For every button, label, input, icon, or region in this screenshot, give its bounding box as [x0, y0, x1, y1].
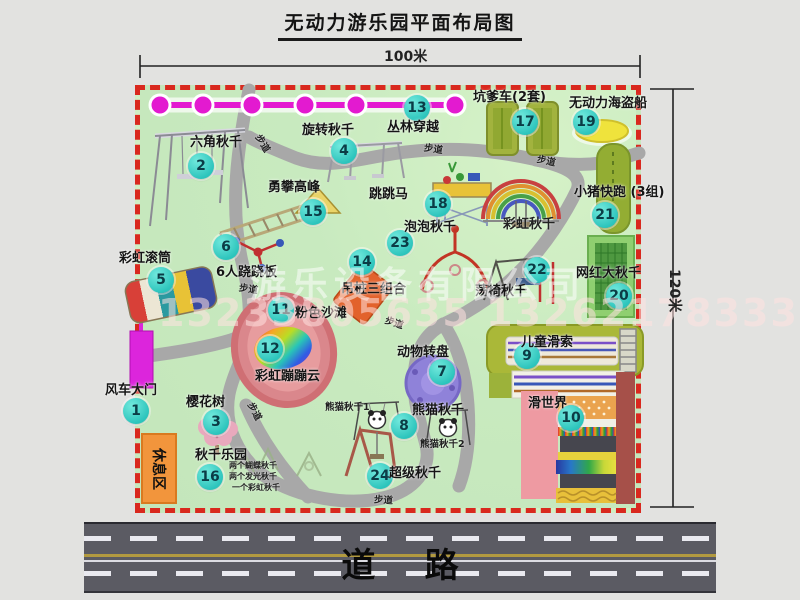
jungle-crossing-zipline — [150, 95, 465, 115]
width-dimension-label: 100米 — [384, 46, 427, 66]
kids-zipline-icon — [487, 325, 643, 376]
page-title: 无动力游乐园平面布局图 — [0, 8, 800, 41]
rest-area-label: 休息区 — [149, 448, 169, 490]
rainbow-swing-icon — [483, 181, 559, 227]
slide-world-icon — [489, 371, 635, 504]
pit-car-icon — [487, 102, 558, 155]
park-plan-canvas: 无动力游乐园平面布局图 100米 120米 — [0, 0, 800, 600]
rest-area: 休息区 — [141, 433, 177, 504]
road: 道 路 — [84, 522, 716, 593]
height-dimension-label: 120米 — [665, 269, 685, 315]
piggy-run-icon — [597, 144, 630, 233]
page-title-text: 无动力游乐园平面布局图 — [278, 8, 521, 41]
hanging-pile-icon — [332, 263, 393, 325]
animal-turntable-icon — [406, 356, 460, 410]
super-swing-icon — [346, 430, 396, 478]
bubble-swing-icon — [421, 225, 489, 292]
road-label: 道 路 — [84, 538, 716, 587]
pirate-ship-icon — [572, 120, 632, 146]
big-swing-net-icon — [588, 236, 634, 317]
rainbow-roller-icon — [124, 265, 219, 324]
